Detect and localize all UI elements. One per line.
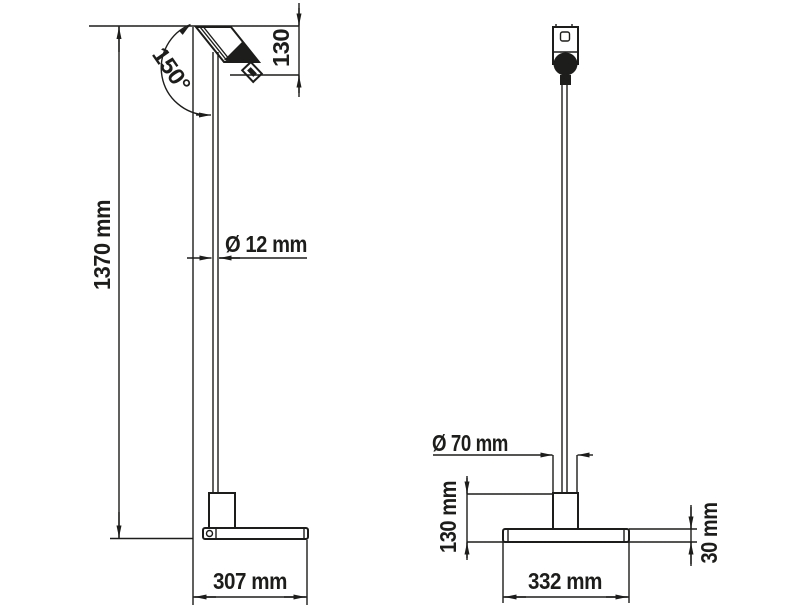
leveling-foot-detail [207,531,213,537]
base-width-label: 332 mm [528,568,602,594]
head-pivot-knob-front [561,32,570,41]
base-plate-side [203,528,308,539]
lamp-head-side [196,27,262,82]
total-height-label: 1370 mm [89,200,115,290]
plate-thickness-label: 30 mm [696,502,722,563]
base-side [203,493,308,539]
stem-diameter-label: Ø 12 mm [225,231,307,257]
dimension-plate-thickness: 30 mm [629,502,722,566]
counterweight-diameter-label: Ø 70 mm [432,430,508,456]
head-knurled-band [224,42,259,62]
front-view: Ø 70 mm 130 mm 30 mm 332 mm [432,24,722,603]
dimension-base-assembly-height: 130 mm [435,476,553,560]
dimension-base-depth: 307 mm [193,27,307,605]
dimension-total-height: 1370 mm [89,26,299,539]
stem-front [562,85,567,493]
side-view: 1370 mm 130 150° Ø 12 mm [89,3,308,605]
base-depth-label: 307 mm [213,568,287,594]
base-plate-front [503,529,629,542]
lamp-head-front [553,24,578,85]
counterweight-side [209,493,235,528]
dimension-stem-diameter: Ø 12 mm [187,231,307,258]
base-front [467,493,697,542]
dimension-base-width: 332 mm [503,542,629,603]
stem-side [213,52,218,493]
dimension-head-angle: 150° [147,25,211,116]
head-stem-joint-front [560,75,571,85]
technical-drawing-page: 1370 mm 130 150° Ø 12 mm [0,0,788,610]
base-assembly-height-label: 130 mm [435,481,461,553]
head-ring-front [554,53,578,76]
counterweight-front [553,493,578,529]
technical-drawing-canvas: 1370 mm 130 150° Ø 12 mm [0,0,788,610]
head-angle-label: 150° [147,42,196,96]
head-height-label: 130 [268,29,294,67]
